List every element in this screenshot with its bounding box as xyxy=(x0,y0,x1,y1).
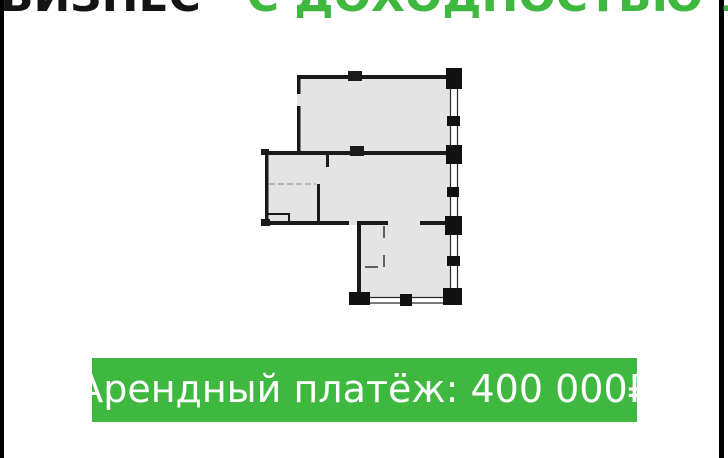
rent-price-banner: Арендный платёж: 400 000₽ xyxy=(92,358,637,422)
headline-highlight: С ДОХОДНОСТЬЮ 15% xyxy=(247,0,728,22)
floor-plan xyxy=(259,65,464,310)
headline: БИЗНЕС С ДОХОДНОСТЬЮ 15% xyxy=(0,0,728,22)
rent-price-text: Арендный платёж: 400 000₽ xyxy=(77,370,652,410)
headline-space xyxy=(216,0,231,22)
right-border-bar xyxy=(719,0,724,458)
headline-prefix: БИЗНЕС xyxy=(0,0,201,22)
left-border-bar xyxy=(0,0,4,458)
floor-plan-svg xyxy=(259,65,464,310)
